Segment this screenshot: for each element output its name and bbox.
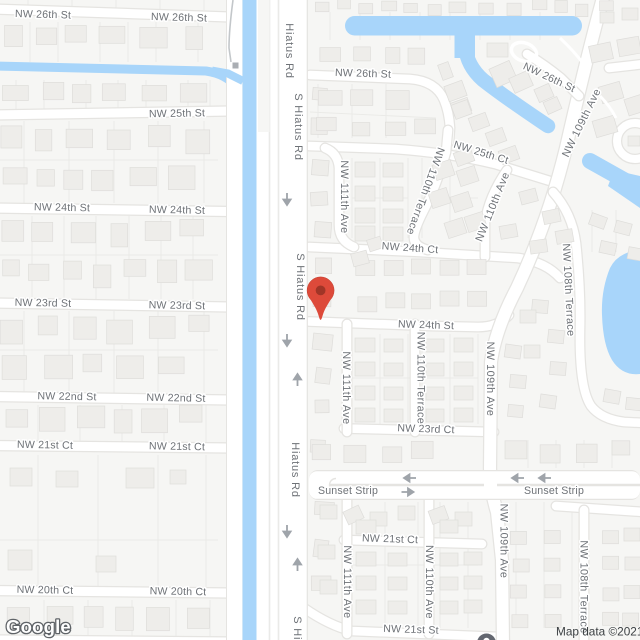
- svg-text:NW 25th St: NW 25th St: [149, 107, 205, 120]
- svg-text:Sunset Strip: Sunset Strip: [318, 485, 378, 497]
- svg-text:S Hiatus Rd: S Hiatus Rd: [291, 616, 303, 640]
- svg-text:NW 108th Terrace: NW 108th Terrace: [578, 540, 590, 633]
- svg-text:NW 111th Ave: NW 111th Ave: [340, 351, 352, 424]
- svg-text:NW 111th Ave: NW 111th Ave: [338, 160, 350, 233]
- svg-text:NW 26th St: NW 26th St: [15, 8, 71, 21]
- svg-text:NW 24th St: NW 24th St: [398, 318, 455, 332]
- svg-text:NW 20th Ct: NW 20th Ct: [150, 585, 207, 598]
- svg-text:NW 24th St: NW 24th St: [149, 204, 205, 217]
- svg-text:NW 23rd St: NW 23rd St: [149, 299, 206, 312]
- svg-text:Sunset Strip: Sunset Strip: [524, 485, 584, 497]
- svg-text:NW 24th St: NW 24th St: [34, 201, 90, 214]
- svg-text:NW 109th Ave: NW 109th Ave: [498, 504, 510, 579]
- svg-text:NW 21st Ct: NW 21st Ct: [149, 440, 205, 453]
- svg-text:NW 110th Terrace: NW 110th Terrace: [415, 332, 427, 424]
- svg-text:S Hiatus Rd: S Hiatus Rd: [294, 253, 306, 321]
- svg-text:NW 20th Ct: NW 20th Ct: [17, 584, 74, 597]
- svg-text:NW 109th Ave: NW 109th Ave: [484, 342, 496, 417]
- svg-text:NW 22nd St: NW 22nd St: [37, 390, 96, 403]
- svg-text:NW 26th St: NW 26th St: [335, 67, 392, 81]
- svg-text:NW 21st Ct: NW 21st Ct: [362, 532, 419, 546]
- svg-text:Google: Google: [6, 616, 71, 637]
- svg-text:S Hiatus Rd: S Hiatus Rd: [292, 93, 304, 161]
- svg-text:NW 110th Ave: NW 110th Ave: [423, 545, 435, 619]
- svg-text:NW 26th St: NW 26th St: [151, 11, 207, 24]
- svg-text:NW 21st St: NW 21st St: [383, 623, 439, 637]
- svg-text:Hiatus Rd: Hiatus Rd: [289, 442, 301, 498]
- svg-text:NW 22nd St: NW 22nd St: [146, 392, 205, 405]
- svg-text:NW 23rd Ct: NW 23rd Ct: [397, 422, 455, 436]
- svg-text:Map data ©2021: Map data ©2021: [556, 625, 640, 639]
- svg-text:NW 23rd St: NW 23rd St: [15, 297, 72, 310]
- svg-text:NW 21st Ct: NW 21st Ct: [17, 439, 73, 452]
- svg-text:Hiatus Rd: Hiatus Rd: [283, 23, 295, 79]
- svg-text:NW 111th Ave: NW 111th Ave: [341, 545, 353, 618]
